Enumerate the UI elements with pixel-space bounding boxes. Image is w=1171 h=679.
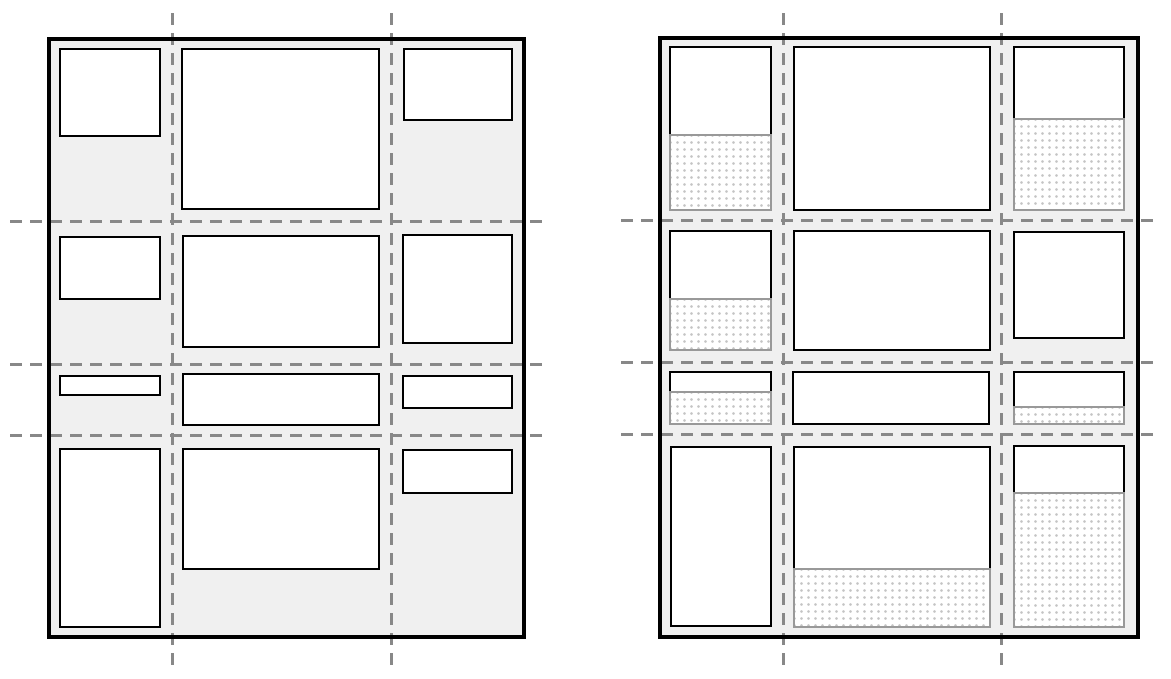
- grid-container-border: [47, 37, 526, 639]
- grid-container-border: [658, 36, 1140, 639]
- grid-item-stretch-area: [1013, 492, 1125, 628]
- grid-item-stretch-area: [1013, 406, 1125, 425]
- grid-item: [1013, 231, 1125, 339]
- grid-item: [59, 48, 161, 137]
- grid-line-vertical: [390, 13, 393, 672]
- grid-item: [793, 230, 991, 351]
- grid-item: [402, 375, 513, 409]
- grid-item: [669, 230, 772, 298]
- grid-item: [59, 375, 161, 396]
- grid-line-vertical: [782, 13, 785, 672]
- grid-item: [181, 48, 380, 210]
- grid-line-horizontal: [10, 363, 547, 366]
- grid-line-horizontal: [10, 434, 547, 437]
- grid-item: [182, 448, 380, 570]
- grid-item: [402, 234, 513, 344]
- grid-item-stretch-area: [1013, 118, 1125, 211]
- left-grid: [0, 0, 1171, 679]
- grid-item-stretch-area: [793, 568, 991, 628]
- grid-item: [1013, 46, 1125, 118]
- grid-item: [59, 448, 161, 628]
- grid-item-stretch-area: [669, 391, 772, 425]
- grid-item: [1013, 445, 1125, 492]
- grid-line-horizontal: [621, 219, 1159, 222]
- grid-item: [792, 371, 990, 425]
- grid-item: [403, 48, 513, 121]
- grid-item-stretch-area: [669, 298, 772, 351]
- grid-line-vertical: [171, 13, 174, 672]
- grid-line-vertical: [1000, 13, 1003, 672]
- grid-line-horizontal: [621, 361, 1159, 364]
- grid-container-fill: [47, 37, 526, 639]
- grid-container-fill: [658, 36, 1140, 639]
- grid-item: [182, 373, 380, 426]
- grid-item: [1013, 371, 1125, 406]
- grid-line-horizontal: [621, 433, 1159, 436]
- grid-item: [670, 446, 772, 627]
- grid-item-stretch-area: [669, 134, 772, 211]
- grid-item: [182, 235, 380, 348]
- diagram-stage: [0, 0, 1171, 679]
- right-grid: [0, 0, 1171, 679]
- grid-item: [669, 46, 772, 134]
- grid-line-horizontal: [10, 220, 547, 223]
- grid-item: [793, 46, 991, 211]
- grid-item: [793, 446, 991, 568]
- grid-item: [59, 236, 161, 300]
- grid-item: [402, 449, 513, 494]
- grid-item: [669, 371, 772, 391]
